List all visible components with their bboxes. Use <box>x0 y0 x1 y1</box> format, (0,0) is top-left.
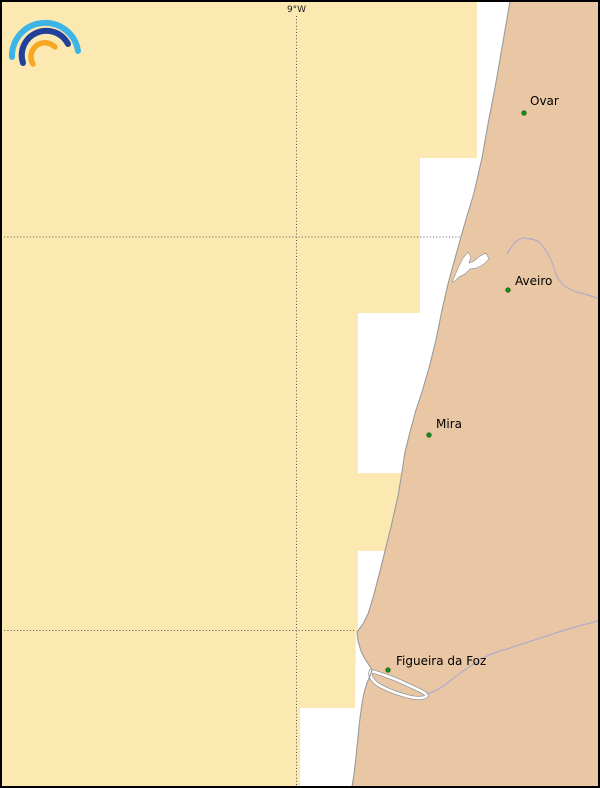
city-marker-figueira-da-foz <box>386 668 391 673</box>
map-canvas[interactable]: 9°W OvarAveiroMiraFigueira da Foz <box>0 0 600 788</box>
map-viewport[interactable]: 9°W OvarAveiroMiraFigueira da Foz <box>0 0 600 788</box>
city-marker-aveiro <box>506 288 511 293</box>
city-marker-mira <box>427 433 432 438</box>
city-label-aveiro: Aveiro <box>515 274 552 288</box>
city-label-ovar: Ovar <box>530 94 559 108</box>
city-label-mira: Mira <box>436 417 462 431</box>
logo-arc-inner-orange <box>31 43 55 64</box>
city-label-figueira-da-foz: Figueira da Foz <box>396 654 486 668</box>
city-marker-ovar <box>522 111 527 116</box>
meteored-logo <box>8 16 86 70</box>
meridian-label: 9°W <box>287 5 306 15</box>
